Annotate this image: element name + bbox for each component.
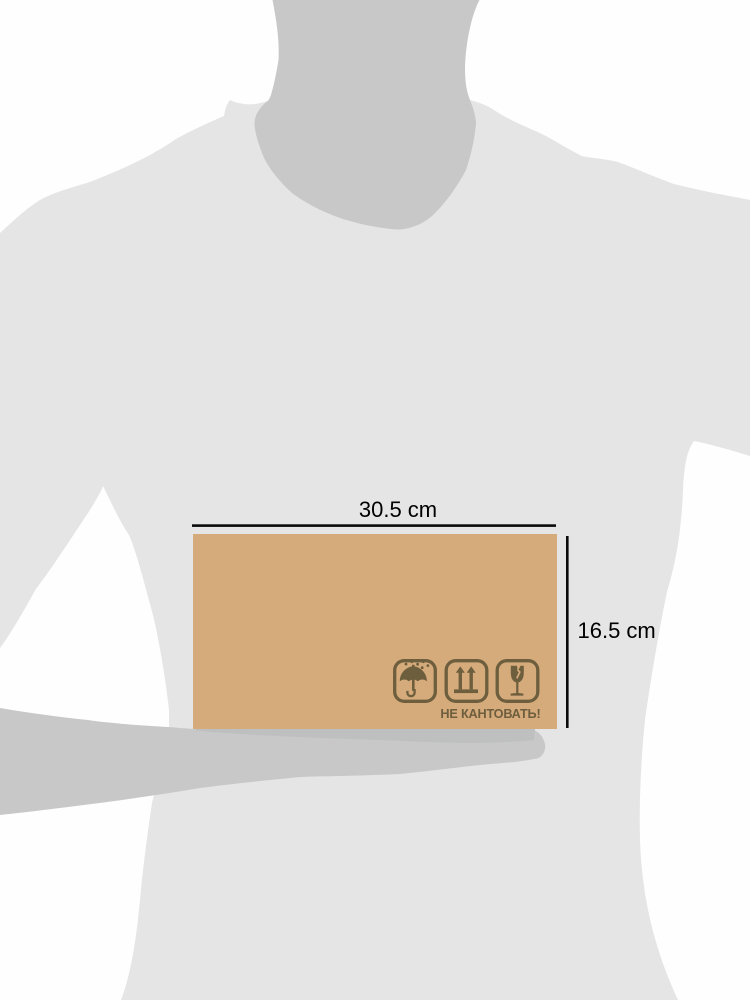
svg-text:30.5 cm: 30.5 cm xyxy=(359,497,437,522)
svg-text:16.5 cm: 16.5 cm xyxy=(578,618,656,643)
svg-text:НЕ КАНТОВАТЬ!: НЕ КАНТОВАТЬ! xyxy=(440,707,540,721)
